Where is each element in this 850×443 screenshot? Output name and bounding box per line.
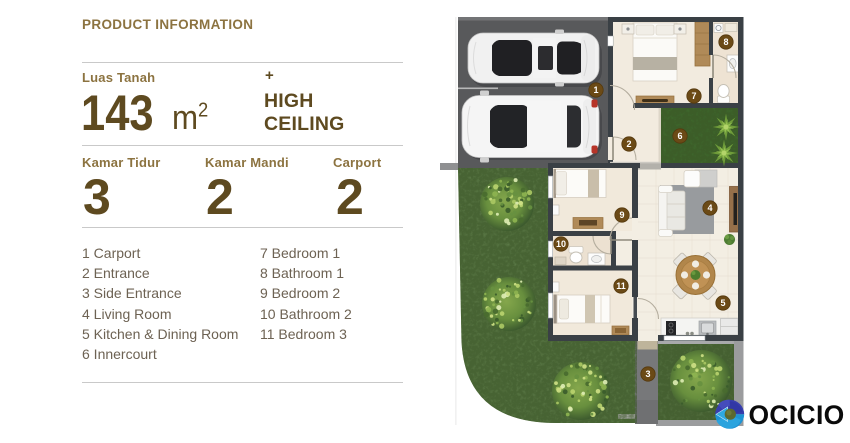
svg-text:9: 9 (619, 210, 624, 220)
svg-text:OCICIO: OCICIO (749, 400, 845, 430)
svg-text:6: 6 (677, 131, 682, 141)
svg-text:1: 1 (593, 85, 598, 95)
svg-text:5: 5 (720, 298, 725, 308)
svg-text:8: 8 (723, 37, 728, 47)
svg-text:4: 4 (707, 203, 712, 213)
svg-text:11: 11 (616, 281, 626, 291)
svg-text:2: 2 (626, 139, 631, 149)
svg-text:7: 7 (691, 91, 696, 101)
svg-text:3: 3 (645, 369, 650, 379)
svg-text:10: 10 (556, 239, 566, 249)
